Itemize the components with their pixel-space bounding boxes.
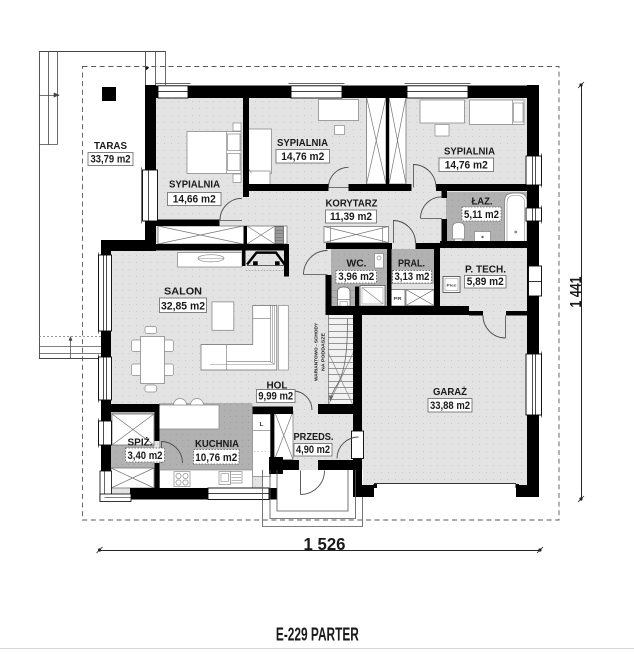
- svg-text:9,99 m2: 9,99 m2: [258, 391, 293, 403]
- svg-text:1 526: 1 526: [304, 534, 346, 554]
- svg-text:3,96 m2: 3,96 m2: [338, 271, 374, 283]
- svg-text:1 441: 1 441: [568, 276, 585, 307]
- svg-text:KUCHNIA: KUCHNIA: [195, 438, 239, 450]
- svg-text:Piec: Piec: [447, 283, 458, 288]
- svg-text:SYPIALNIA: SYPIALNIA: [169, 180, 220, 191]
- svg-text:SYPIALNIA: SYPIALNIA: [444, 147, 495, 158]
- svg-text:SALON: SALON: [164, 286, 202, 298]
- svg-text:NA PODDASZE: NA PODDASZE: [321, 333, 326, 371]
- svg-text:WARIANTOWO - SCHODY: WARIANTOWO - SCHODY: [314, 323, 319, 381]
- svg-text:32,85 m2: 32,85 m2: [161, 301, 205, 313]
- svg-text:PRZEDS.: PRZEDS.: [294, 432, 334, 443]
- svg-text:3,40 m2: 3,40 m2: [128, 450, 163, 462]
- svg-text:5,89 m2: 5,89 m2: [467, 276, 504, 288]
- svg-text:L: L: [260, 422, 264, 428]
- svg-text:TARAS: TARAS: [94, 141, 127, 152]
- svg-text:ŁAZ.: ŁAZ.: [472, 197, 493, 208]
- svg-text:PRAL.: PRAL.: [398, 259, 425, 270]
- svg-text:14,76 m2: 14,76 m2: [445, 160, 488, 172]
- svg-text:4,90 m2: 4,90 m2: [296, 444, 330, 456]
- svg-text:33,79 m2: 33,79 m2: [91, 154, 131, 166]
- svg-text:14,76 m2: 14,76 m2: [281, 151, 324, 163]
- svg-text:SPIŻ.: SPIŻ.: [128, 436, 153, 449]
- svg-text:11,39 m2: 11,39 m2: [330, 211, 372, 223]
- svg-text:WC.: WC.: [347, 259, 367, 270]
- svg-text:5,11 m2: 5,11 m2: [464, 209, 499, 221]
- svg-text:10,76 m2: 10,76 m2: [195, 452, 237, 464]
- svg-text:GARAŻ: GARAŻ: [433, 385, 468, 398]
- svg-text:E-229 PARTER: E-229 PARTER: [276, 625, 359, 645]
- svg-text:3,13 m2: 3,13 m2: [395, 271, 430, 283]
- svg-text:14,66 m2: 14,66 m2: [173, 194, 216, 206]
- svg-text:33,88 m2: 33,88 m2: [430, 400, 470, 412]
- svg-text:SYPIALNIA: SYPIALNIA: [277, 138, 328, 149]
- svg-text:PR: PR: [394, 296, 403, 301]
- svg-text:KORYTARZ: KORYTARZ: [326, 199, 378, 210]
- svg-text:P. TECH.: P. TECH.: [465, 265, 506, 276]
